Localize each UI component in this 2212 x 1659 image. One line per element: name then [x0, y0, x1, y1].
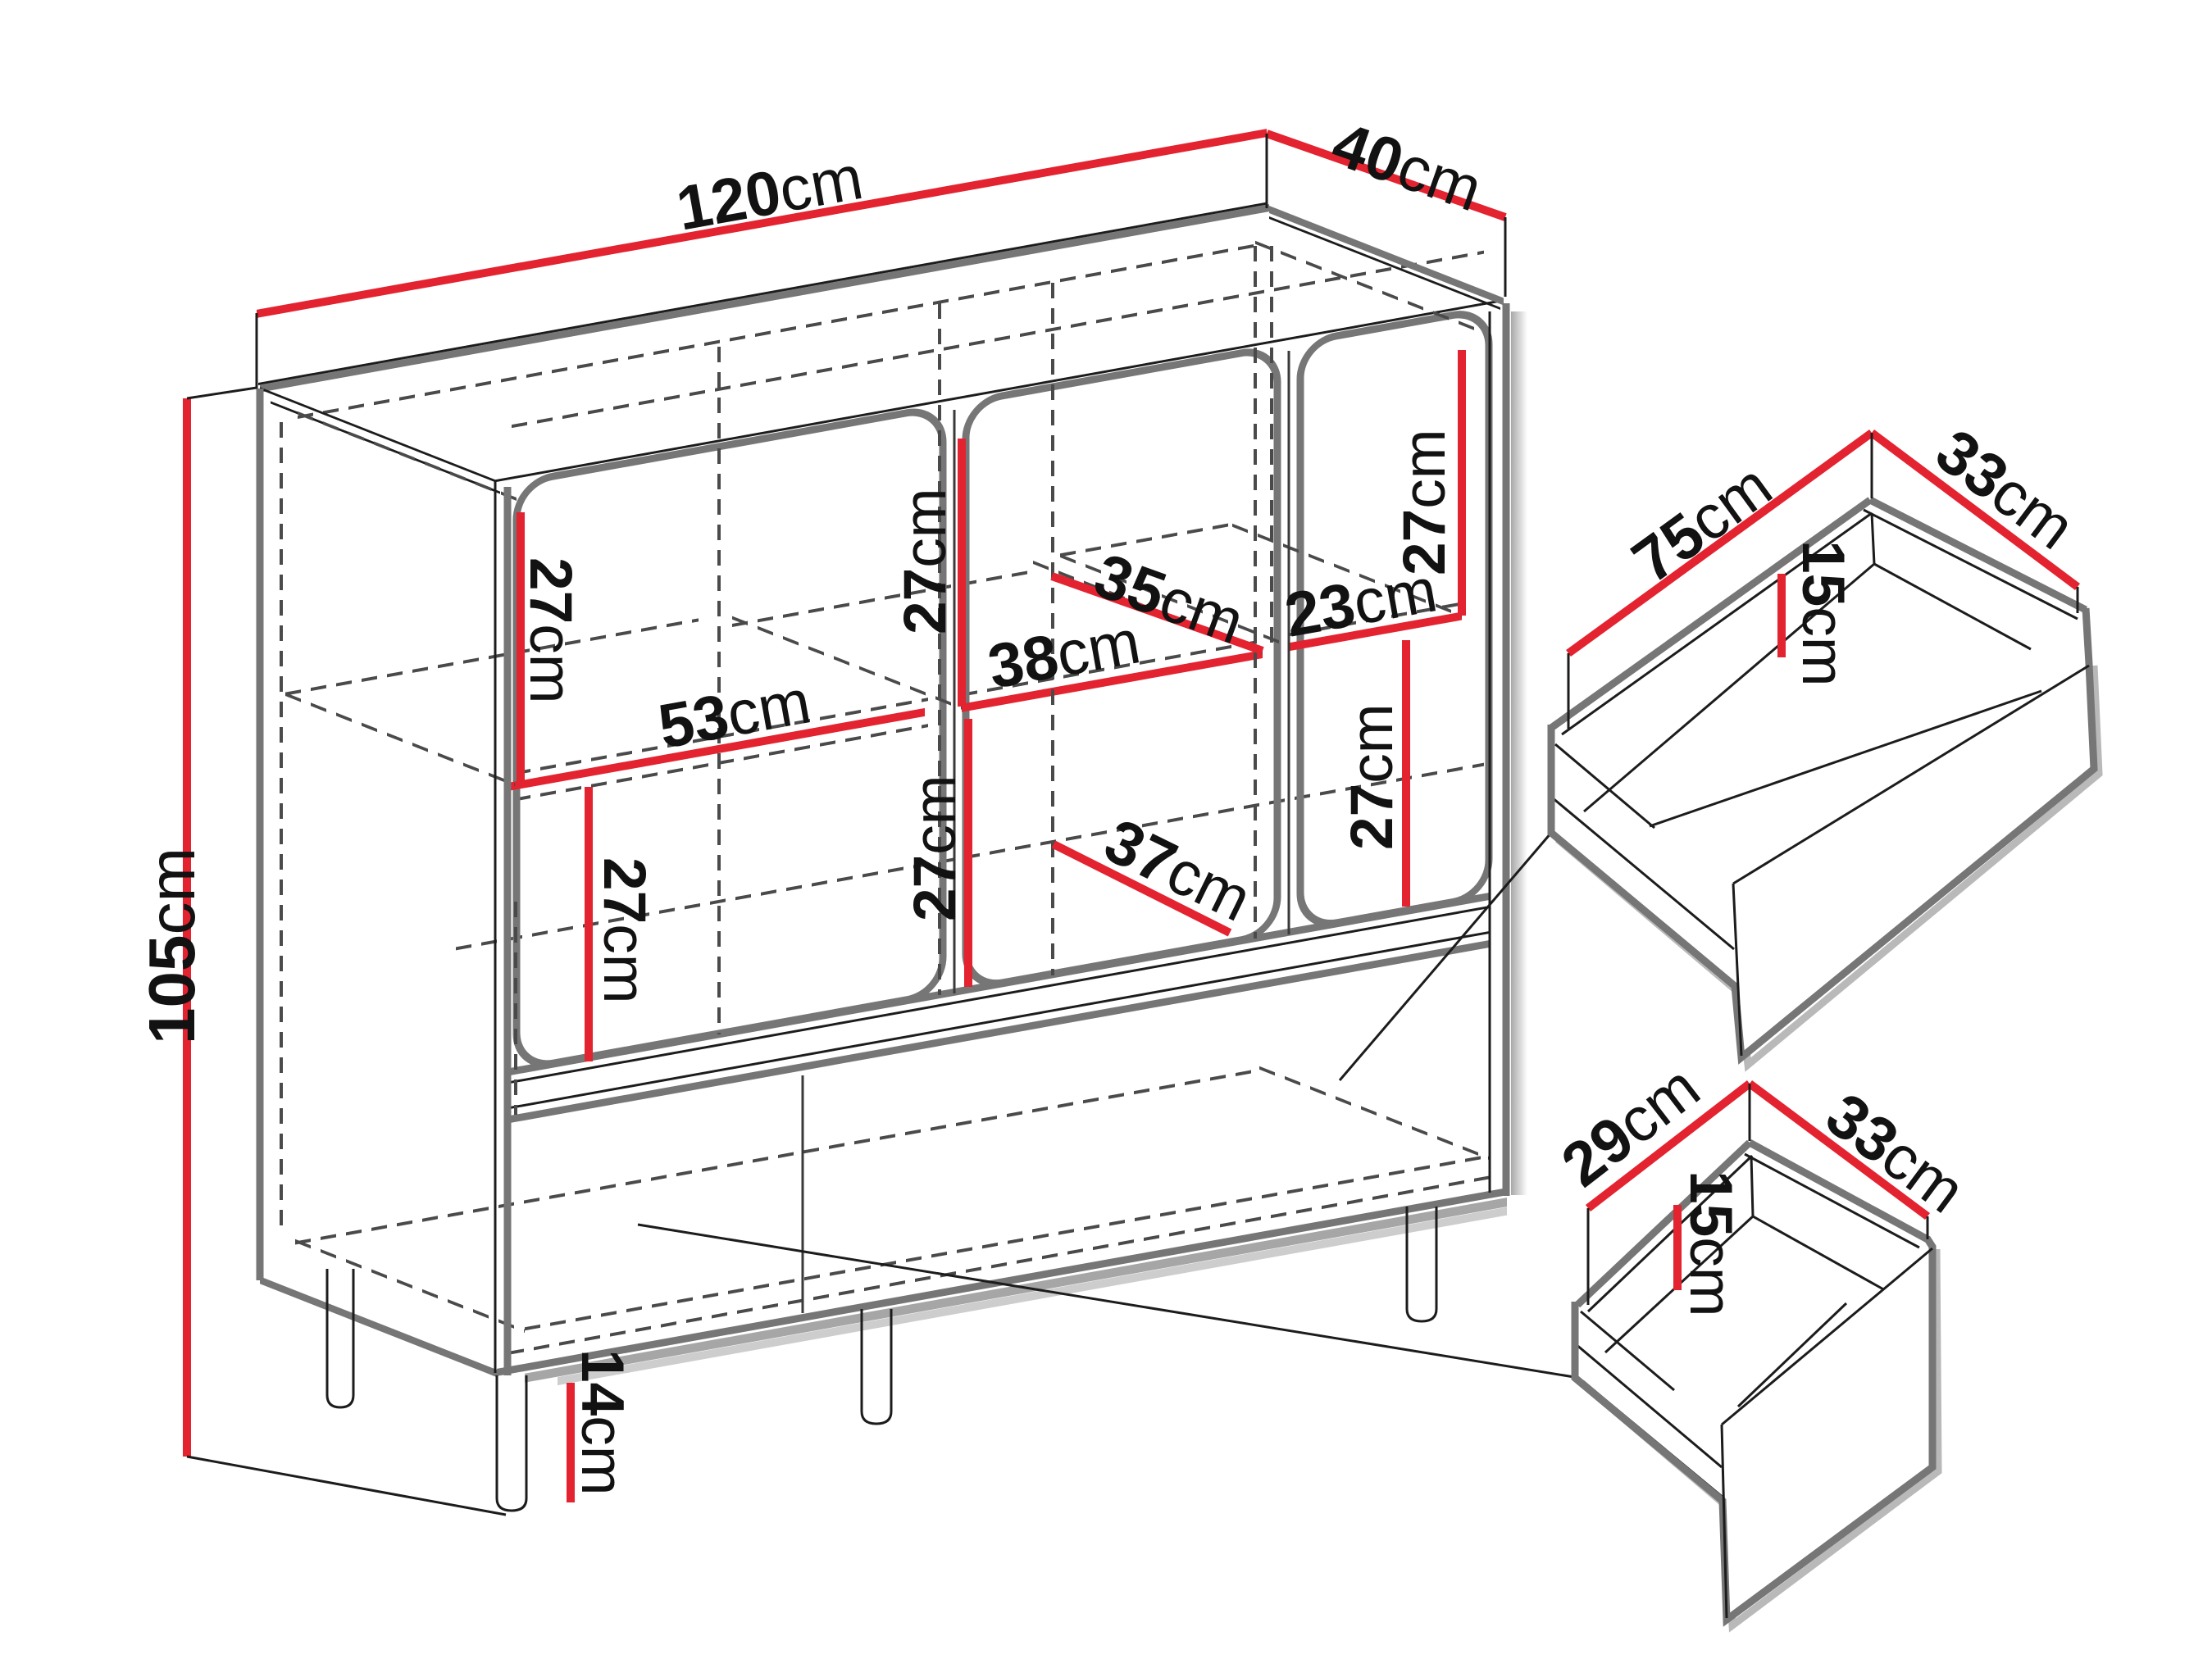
svg-text:27cm: 27cm: [892, 488, 958, 634]
svg-text:27cm: 27cm: [517, 557, 584, 704]
svg-text:27cm: 27cm: [1391, 429, 1458, 575]
svg-text:15cm: 15cm: [1790, 540, 1856, 687]
svg-text:27cm: 27cm: [591, 857, 658, 1004]
svg-text:105cm: 105cm: [135, 848, 208, 1044]
svg-text:27cm: 27cm: [902, 775, 968, 921]
svg-text:27cm: 27cm: [1339, 703, 1405, 850]
svg-text:15cm: 15cm: [1677, 1170, 1744, 1317]
svg-text:14cm: 14cm: [569, 1349, 635, 1496]
